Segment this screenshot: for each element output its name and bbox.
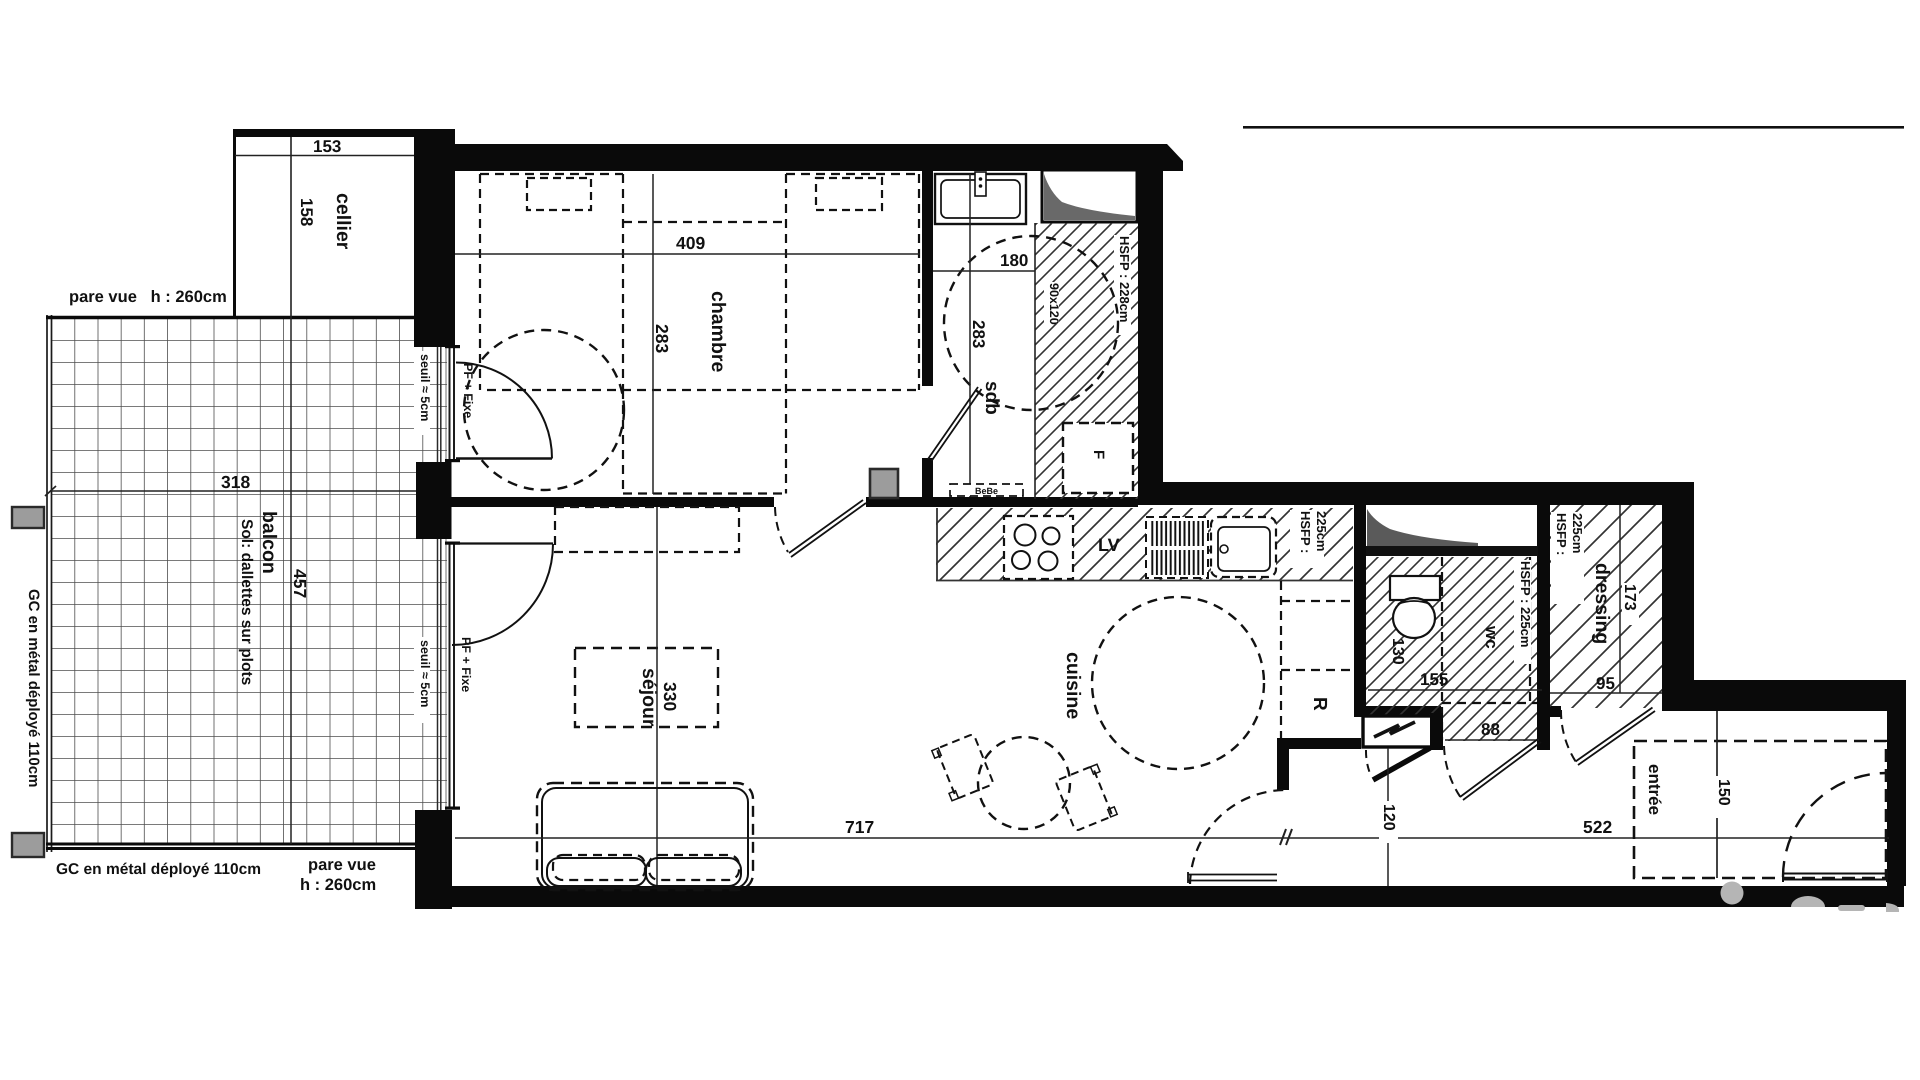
svg-text:cuisine: cuisine — [1062, 652, 1084, 719]
svg-text:130: 130 — [1389, 638, 1406, 665]
svg-text:cellier: cellier — [332, 193, 354, 250]
svg-text:409: 409 — [676, 233, 705, 253]
svg-text:225cm: 225cm — [1314, 511, 1329, 551]
svg-text:HSFP :: HSFP : — [1554, 513, 1569, 555]
svg-text:717: 717 — [845, 817, 874, 837]
svg-text:88: 88 — [1481, 720, 1500, 739]
svg-text:pare vue h : 260cm: pare vue h : 260cm — [69, 288, 227, 306]
svg-text:153: 153 — [313, 137, 341, 156]
svg-text:chambre: chambre — [707, 291, 729, 372]
svg-text:BeBe: BeBe — [975, 486, 998, 496]
svg-text:LV: LV — [1098, 535, 1120, 555]
svg-text:dressing: dressing — [1591, 563, 1613, 644]
svg-text:173: 173 — [1621, 584, 1638, 611]
svg-text:457: 457 — [290, 569, 310, 598]
svg-text:HSFP : 228cm: HSFP : 228cm — [1117, 236, 1132, 322]
svg-text:wc: wc — [1482, 625, 1501, 649]
svg-text:150: 150 — [1715, 779, 1732, 806]
svg-text:180: 180 — [1000, 251, 1028, 270]
svg-text:330: 330 — [660, 682, 680, 711]
svg-text:entrée: entrée — [1645, 764, 1664, 815]
svg-text:HSFP :: HSFP : — [1298, 511, 1313, 553]
svg-text:sdb: sdb — [981, 381, 1002, 415]
svg-text:seuil ≈ 5cm: seuil ≈ 5cm — [418, 354, 432, 421]
svg-text:522: 522 — [1583, 817, 1612, 837]
svg-text:90x120: 90x120 — [1047, 283, 1061, 325]
svg-text:95: 95 — [1596, 674, 1615, 693]
svg-text:120: 120 — [1380, 804, 1397, 831]
svg-text:balcon: balcon — [258, 511, 280, 574]
svg-text:Sol: dallettes sur plots: Sol: dallettes sur plots — [238, 519, 255, 685]
svg-text:318: 318 — [221, 472, 250, 492]
svg-text:158: 158 — [297, 198, 316, 226]
svg-text:225cm: 225cm — [1570, 513, 1585, 553]
svg-text:seuil ≈ 5cm: seuil ≈ 5cm — [418, 640, 432, 707]
svg-text:GC en métal déployé 110cm: GC en métal déployé 110cm — [56, 861, 261, 878]
svg-text:R: R — [1309, 697, 1330, 711]
svg-text:GC en métal déployé 110cm: GC en métal déployé 110cm — [25, 589, 42, 787]
svg-text:F: F — [1090, 450, 1107, 459]
svg-text:HSFP : 225cm: HSFP : 225cm — [1518, 561, 1533, 647]
svg-text:283: 283 — [652, 324, 672, 353]
svg-text:h : 260cm: h : 260cm — [300, 876, 376, 894]
svg-text:283: 283 — [969, 320, 988, 348]
svg-text:155: 155 — [1420, 670, 1448, 689]
svg-text:pare vue: pare vue — [308, 856, 376, 874]
